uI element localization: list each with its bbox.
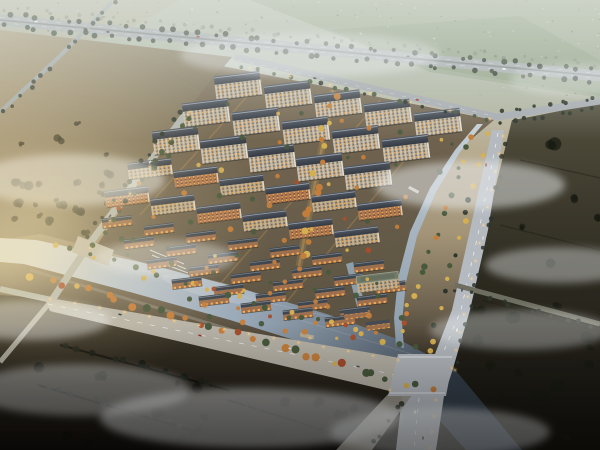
- aerial-rendering: [0, 0, 600, 450]
- vignette-overlay: [0, 0, 600, 450]
- rendering-frame: [0, 0, 600, 450]
